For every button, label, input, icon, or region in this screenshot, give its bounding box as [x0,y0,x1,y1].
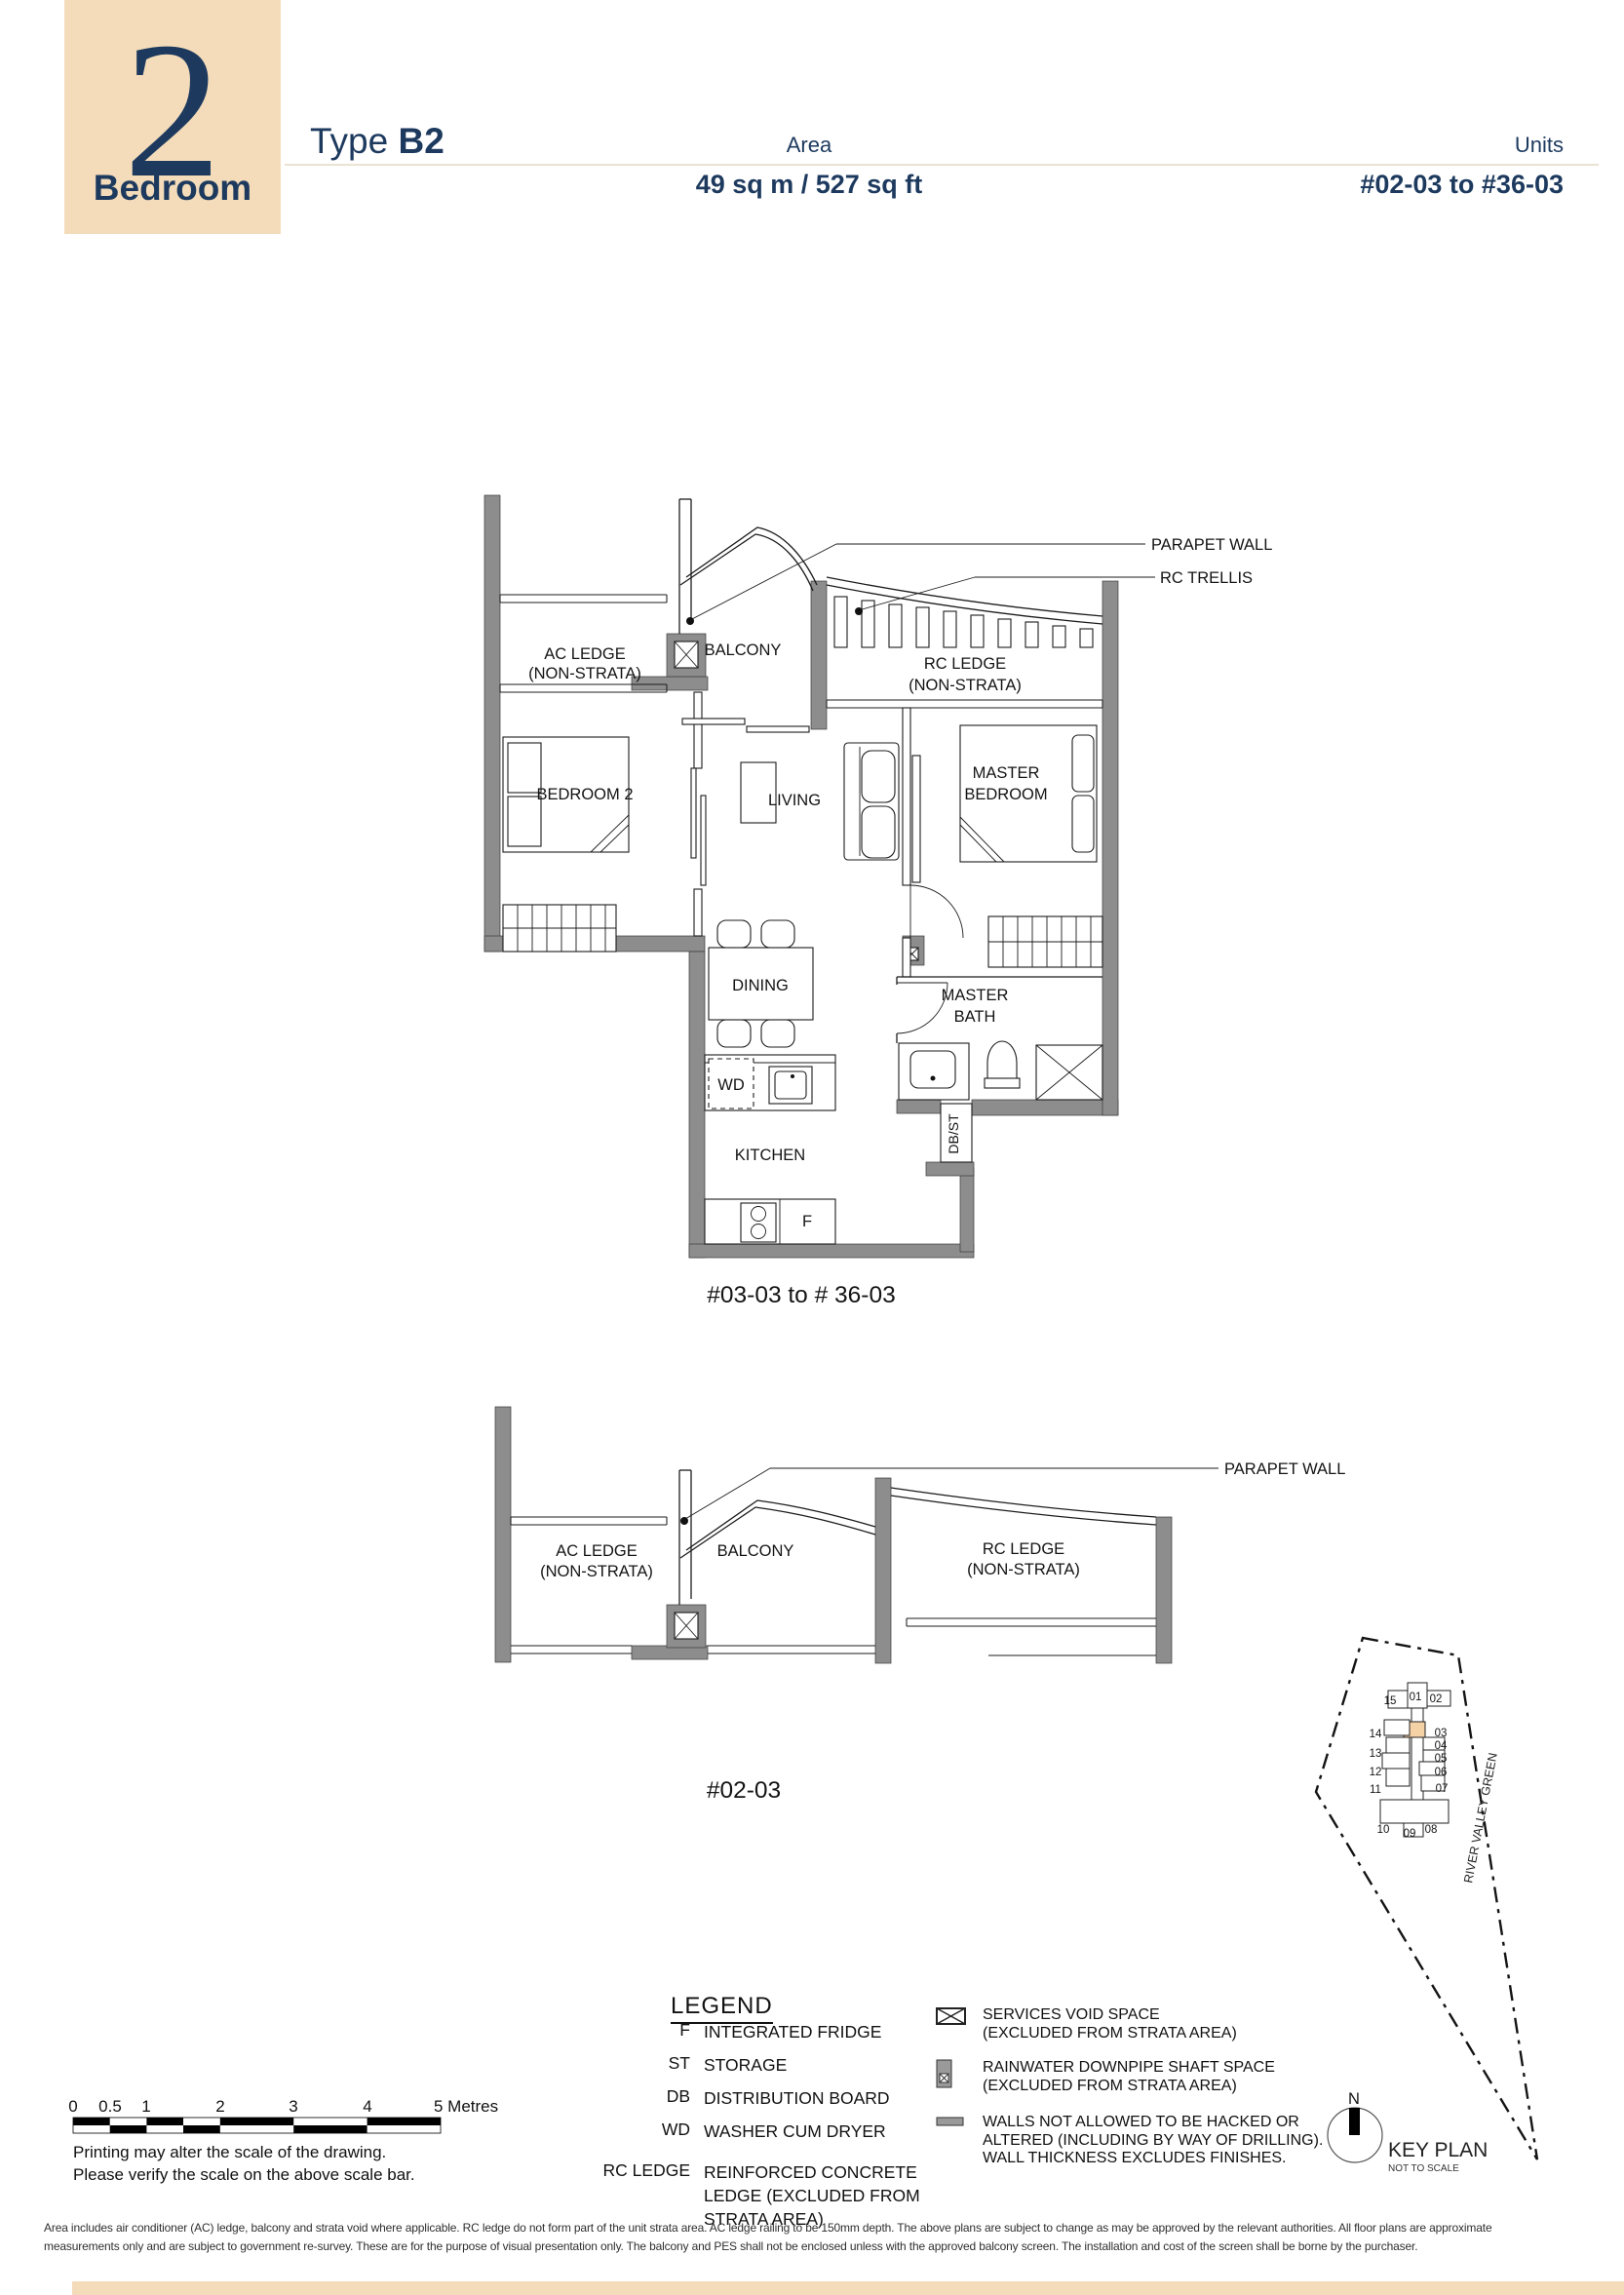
legend-text-line: REINFORCED CONCRETE [704,2162,917,2182]
keyplan-unit-11: 11 [1370,1784,1381,1796]
scale-bar: 0 0.5 1 2 3 4 5 Metres [68,2097,498,2133]
legend-text: STORAGE [704,2053,975,2077]
keyplan-subtitle: NOT TO SCALE [1388,2163,1459,2174]
keyplan-unit-15: 15 [1384,1695,1397,1707]
balcony-slider [682,719,745,724]
keyplan-unit-14: 14 [1370,1729,1382,1740]
fridge-label: F [802,1213,812,1230]
legend-abbr: WD [526,2120,690,2143]
ac-ledge-sublabel: (NON-STRATA) [528,665,641,682]
rc-trellis-shape [827,577,1102,647]
section-parapet-shape [679,1470,1156,1605]
parapet-wall-callout: PARAPET WALL [1151,536,1272,554]
legend-text-line: LEDGE (EXCLUDED FROM [704,2186,920,2205]
master-bath-label-1: MASTER [942,987,1009,1004]
rc-trellis-callout: RC TRELLIS [1160,569,1253,587]
drawings-canvas: PARAPET WALL RC TRELLIS [0,0,1624,2295]
legend-text: INTEGRATED FRIDGE [704,2020,975,2043]
bedroom2-furniture [503,737,706,952]
keyplan-unit-03: 03 [1435,1728,1448,1739]
services-void-icon [667,634,706,677]
balcony-label: BALCONY [705,642,782,659]
street-label: RIVER VALLEY GREEN [1461,1752,1500,1885]
main-plan-caption: #03-03 to # 36-03 [707,1282,895,1308]
keyplan-unit-08: 08 [1425,1824,1438,1836]
db-st-label: DB/ST [946,1113,961,1154]
scale-2: 2 [215,2097,224,2116]
scale-5-metres: 5 Metres [434,2097,498,2116]
keyplan-unit-02: 02 [1430,1693,1443,1705]
legend-item-db: DB DISTRIBUTION BOARD [526,2086,975,2110]
disclaimer-line-1: Area includes air conditioner (AC) ledge… [44,2219,1590,2237]
master-bath-label-2: BATH [954,1008,996,1026]
no-hack-wall-icon [936,2114,969,2168]
legend-symbol-line: (EXCLUDED FROM STRATA AREA) [983,2078,1237,2094]
bottom-accent-bar [72,2281,1624,2295]
legend-item-wd: WD WASHER CUM DRYER [526,2120,975,2143]
legend-symbol-text: RAINWATER DOWNPIPE SHAFT SPACE (EXCLUDED… [983,2059,1326,2095]
section-windows [511,1517,1156,1655]
north-label: N [1348,2090,1360,2108]
section-rc-ledge-sublabel: (NON-STRATA) [967,1561,1080,1578]
floor-plan-page: 2 Bedroom Type B2 Area Units 49 sq m / 5… [0,0,1624,2295]
wd-label: WD [717,1076,745,1094]
section-balcony-label: BALCONY [717,1542,794,1560]
legend-item-storage: ST STORAGE [526,2053,975,2077]
scale-notes: Printing may alter the scale of the draw… [73,2141,415,2186]
section-floor-plan: PARAPET WALL AC LEDGE (NON-STRATA) BALCO… [495,1407,1345,1804]
keyplan-unit-05: 05 [1435,1753,1448,1765]
legend-symbol-line: RAINWATER DOWNPIPE SHAFT SPACE [983,2059,1275,2076]
main-floor-plan: PARAPET WALL RC TRELLIS [484,495,1272,1308]
services-void-icon-2 [667,1605,706,1648]
living-label: LIVING [768,792,821,809]
master-bedroom-furniture [960,725,1102,967]
master-bedroom-label-2: BEDROOM [964,786,1047,803]
rainwater-downpipe-icon [936,2059,969,2095]
north-compass-icon [1328,2108,1382,2162]
bedroom2-label: BEDROOM 2 [536,786,633,803]
disclaimer-line-2: measurements only and are subject to gov… [44,2237,1590,2256]
ac-ledge-label: AC LEDGE [544,645,625,663]
key-plan: 15 01 02 03 04 05 06 07 14 13 12 11 10 0… [1316,1638,1537,2174]
keyplan-unit-04: 04 [1435,1740,1448,1752]
legend-abbr: DB [526,2086,690,2110]
keyplan-unit-10: 10 [1377,1824,1390,1836]
legend-symbol-rainwater: RAINWATER DOWNPIPE SHAFT SPACE (EXCLUDED… [936,2059,1326,2095]
legend-symbol-line: SERVICES VOID SPACE [983,2006,1160,2023]
disclaimer: Area includes air conditioner (AC) ledge… [44,2219,1590,2256]
section-callout-leader [680,1468,1218,1525]
section-rc-ledge-label: RC LEDGE [983,1540,1064,1558]
keyplan-unit-13: 13 [1370,1748,1382,1760]
dining-label: DINING [732,977,789,994]
legend-symbol-line: WALLS NOT ALLOWED TO BE HACKED OR [983,2114,1299,2130]
keyplan-unit-07: 07 [1436,1783,1449,1795]
keyplan-unit-12: 12 [1370,1767,1382,1778]
rc-ledge-sublabel: (NON-STRATA) [909,677,1022,694]
legend-symbol-text: SERVICES VOID SPACE (EXCLUDED FROM STRAT… [983,2006,1326,2042]
scale-05: 0.5 [98,2097,122,2116]
keyplan-title: KEY PLAN [1388,2139,1488,2161]
scale-1: 1 [141,2097,150,2116]
section-ac-ledge-sublabel: (NON-STRATA) [540,1563,653,1580]
scale-0: 0 [68,2097,77,2116]
scale-note-1: Printing may alter the scale of the draw… [73,2141,415,2163]
legend-text: DISTRIBUTION BOARD [704,2086,975,2110]
site-boundary [1316,1638,1537,2159]
legend-symbol-line: (EXCLUDED FROM STRATA AREA) [983,2025,1237,2042]
scale-3: 3 [289,2097,297,2116]
legend-item-fridge: F INTEGRATED FRIDGE [526,2020,975,2043]
legend-symbol-services-void: SERVICES VOID SPACE (EXCLUDED FROM STRAT… [936,2006,1326,2042]
living-furniture [741,743,963,938]
legend-symbol-walls: WALLS NOT ALLOWED TO BE HACKED OR ALTERE… [936,2114,1326,2168]
section-parapet-callout: PARAPET WALL [1224,1460,1345,1478]
legend-text: WASHER CUM DRYER [704,2120,975,2143]
keyplan-unit-06: 06 [1435,1767,1448,1778]
master-bedroom-label-1: MASTER [973,764,1040,782]
services-void-icon [936,2006,969,2042]
legend-abbr: F [526,2020,690,2043]
keyplan-unit-01: 01 [1410,1692,1422,1703]
legend-symbol-line: ALTERED (INCLUDING BY WAY OF DRILLING). [983,2132,1323,2149]
section-ac-ledge-label: AC LEDGE [556,1542,637,1560]
rc-ledge-label: RC LEDGE [924,655,1006,673]
legend-symbol-text: WALLS NOT ALLOWED TO BE HACKED OR ALTERE… [983,2114,1326,2168]
scale-note-2: Please verify the scale on the above sca… [73,2163,415,2186]
legend-abbr: ST [526,2053,690,2077]
scale-4: 4 [363,2097,371,2116]
legend-symbol-line: WALL THICKNESS EXCLUDES FINISHES. [983,2150,1286,2166]
parapet-wall-shape [679,499,817,634]
kitchen-label: KITCHEN [735,1147,805,1164]
section-plan-caption: #02-03 [707,1777,781,1804]
keyplan-unit-09: 09 [1404,1828,1416,1840]
